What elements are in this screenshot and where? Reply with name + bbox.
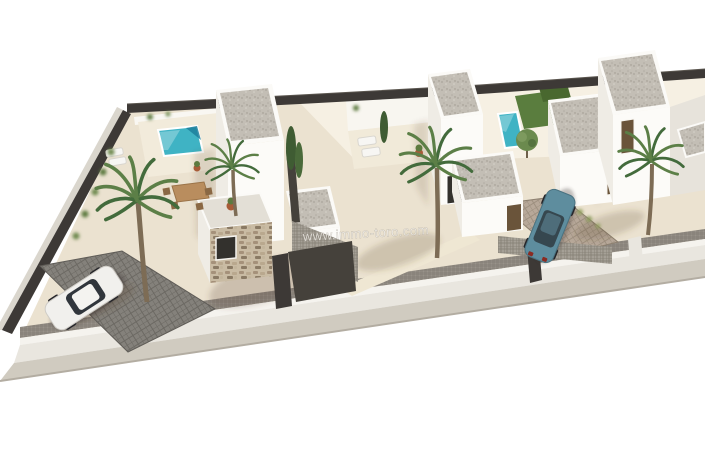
pool-left [158, 126, 203, 156]
villa-render-scene: www.immo-toro.com [0, 0, 705, 470]
villa-left-stone-window [216, 236, 236, 260]
gate-pillar-right-white [628, 236, 643, 266]
villa-middle-door [507, 204, 521, 231]
render-screenshot: www.immo-toro.com [0, 0, 705, 470]
villa-middle-porch-gravel [455, 154, 519, 200]
